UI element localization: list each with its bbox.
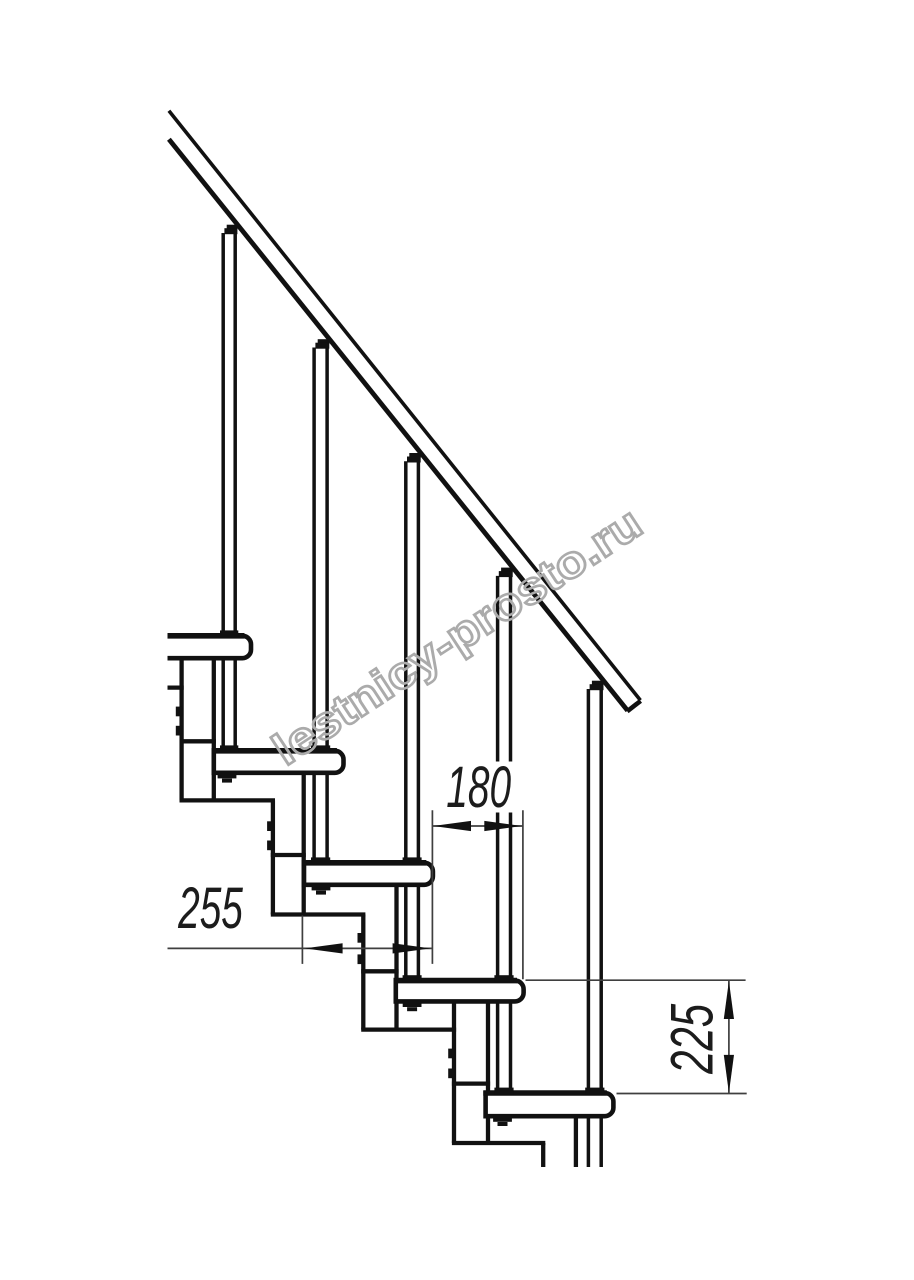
svg-text:225: 225 — [658, 1004, 725, 1075]
svg-text:255: 255 — [177, 876, 243, 941]
svg-text:180: 180 — [446, 755, 511, 820]
